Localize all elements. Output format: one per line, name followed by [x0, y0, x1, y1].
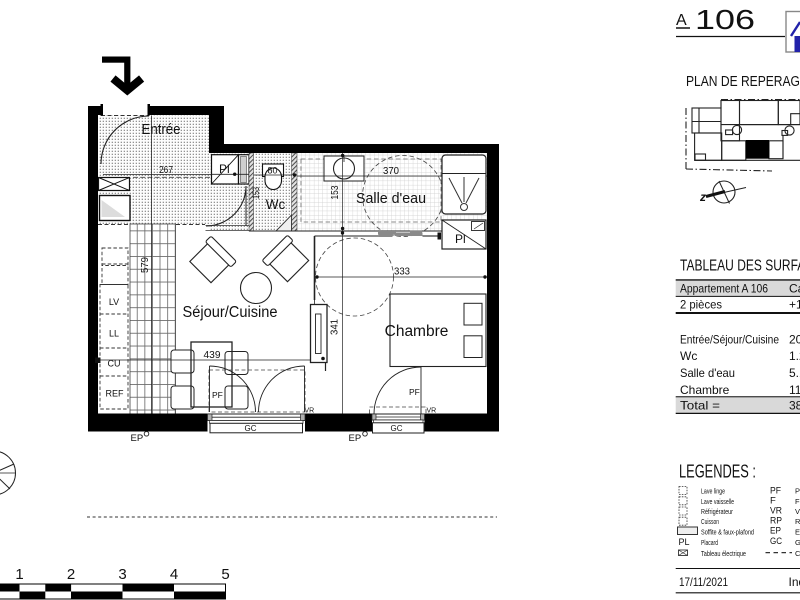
svg-text:A: A: [676, 12, 687, 29]
svg-text:GC: GC: [391, 424, 403, 433]
svg-text:V: V: [795, 507, 800, 516]
svg-text:F: F: [795, 497, 800, 506]
svg-text:Wc: Wc: [680, 349, 697, 363]
svg-text:579: 579: [139, 257, 151, 273]
svg-text:Soffite & faux-plafond: Soffite & faux-plafond: [701, 528, 754, 537]
svg-text:439: 439: [204, 349, 221, 361]
svg-text:Séjour/Cuisine: Séjour/Cuisine: [183, 304, 278, 321]
svg-text:EP: EP: [131, 433, 144, 444]
svg-text:EP: EP: [349, 433, 362, 444]
svg-text:17/11/2021: 17/11/2021: [679, 575, 728, 589]
svg-text:2 pièces: 2 pièces: [680, 298, 722, 312]
svg-text:153: 153: [251, 187, 261, 199]
svg-text:Lave vaisselle: Lave vaisselle: [701, 497, 734, 506]
svg-text:GC: GC: [770, 536, 782, 547]
svg-text:GC: GC: [245, 424, 257, 433]
svg-text:2: 2: [67, 566, 75, 583]
svg-text:Ind: Ind: [789, 575, 800, 589]
svg-text:Tableau électrique: Tableau électrique: [701, 549, 746, 558]
svg-text:Wc: Wc: [266, 197, 286, 212]
svg-text:11: 11: [789, 383, 800, 397]
svg-text:EP: EP: [770, 526, 781, 537]
svg-text:+1: +1: [789, 298, 800, 312]
svg-text:LEGENDES :: LEGENDES :: [679, 461, 756, 482]
svg-text:Pl: Pl: [455, 232, 466, 246]
svg-text:267: 267: [159, 165, 173, 176]
svg-text:VR: VR: [427, 408, 437, 415]
svg-text:PLAN DE REPERAGE: PLAN DE REPERAGE: [686, 74, 800, 90]
svg-text:5.1: 5.1: [789, 366, 800, 380]
svg-text:PL: PL: [679, 537, 690, 547]
svg-text:REF: REF: [106, 389, 125, 399]
svg-text:3: 3: [118, 566, 126, 583]
svg-text:1.2: 1.2: [789, 349, 800, 363]
svg-text:P: P: [795, 487, 800, 496]
svg-text:Pl: Pl: [219, 162, 230, 176]
svg-text:Entrée: Entrée: [142, 121, 181, 138]
svg-text:Total =: Total =: [680, 399, 720, 413]
svg-text:Car: Car: [789, 282, 800, 296]
svg-text:38: 38: [789, 399, 800, 413]
svg-text:Entrée/Séjour/Cuisine: Entrée/Séjour/Cuisine: [680, 333, 779, 347]
svg-text:1: 1: [15, 566, 23, 583]
svg-text:4: 4: [170, 566, 178, 583]
svg-text:Lave linge: Lave linge: [701, 487, 725, 496]
svg-text:R: R: [795, 517, 800, 526]
svg-text:Salle d'eau: Salle d'eau: [680, 366, 735, 380]
svg-text:Cuisson: Cuisson: [701, 517, 719, 526]
svg-text:153: 153: [329, 185, 341, 199]
svg-text:20: 20: [789, 333, 800, 347]
svg-text:PF: PF: [409, 387, 420, 397]
svg-text:G: G: [795, 538, 800, 547]
svg-text:VR: VR: [305, 408, 315, 415]
svg-text:z: z: [699, 190, 706, 204]
svg-text:Chambre: Chambre: [680, 383, 730, 397]
svg-text:Placard: Placard: [701, 538, 718, 547]
svg-text:TABLEAU DES SURFACES: TABLEAU DES SURFACES: [680, 258, 800, 275]
svg-text:5: 5: [221, 566, 229, 583]
svg-text:Chambre: Chambre: [385, 323, 449, 340]
svg-text:C: C: [795, 549, 800, 558]
svg-text:E: E: [795, 528, 800, 537]
svg-text:LL: LL: [109, 329, 119, 339]
svg-text:333: 333: [394, 266, 410, 278]
svg-text:LV: LV: [109, 297, 119, 307]
svg-text:370: 370: [383, 165, 399, 177]
svg-text:80: 80: [268, 166, 278, 176]
svg-text:Réfrigérateur: Réfrigérateur: [701, 507, 733, 516]
svg-text:Appartement A 106: Appartement A 106: [680, 282, 768, 296]
svg-text:PF: PF: [212, 390, 223, 400]
svg-text:106: 106: [695, 4, 755, 35]
svg-text:341: 341: [329, 319, 341, 335]
svg-text:Salle d'eau: Salle d'eau: [356, 191, 426, 207]
